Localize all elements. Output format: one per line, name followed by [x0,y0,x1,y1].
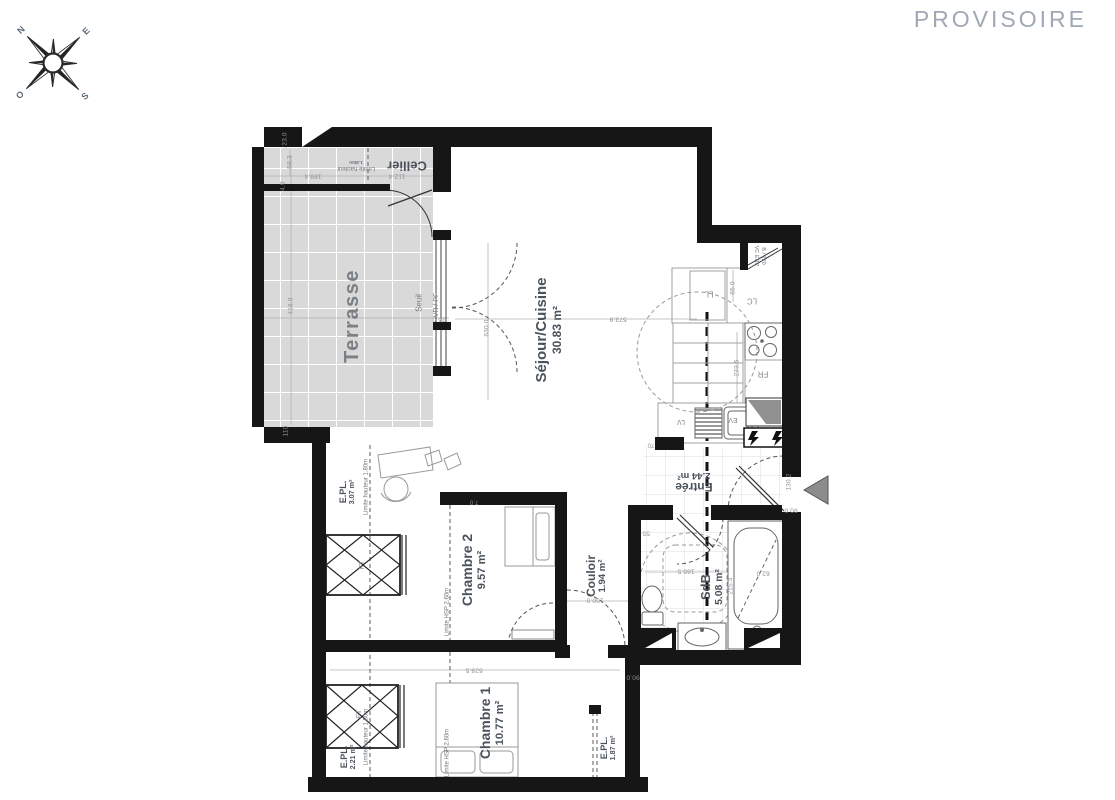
bed-chambre1-icon [436,683,518,777]
watermark-provisoire: PROVISOIRE [914,6,1087,33]
roof-window-icon [326,685,404,748]
roof-window-icon [326,535,406,595]
washbasin-icon [678,623,726,651]
compass-east-label: E [80,25,91,36]
dining-table-icon [637,292,757,412]
electrical-equipment [744,398,784,447]
fridge-icon [745,360,783,402]
radiator-icon [512,630,554,639]
floor-plan-drawing: N E S O [0,0,1115,800]
bed-chambre2-icon [505,507,555,566]
cooktop-icon [745,323,783,360]
entrance-arrow-icon [804,476,828,504]
compass-south-label: S [79,90,90,101]
terrace-window [436,240,446,366]
compass-rose-icon: N E S O [0,0,124,134]
toilet-icon [642,586,663,625]
compass-north-label: N [15,24,27,36]
compass-west-label: O [14,89,26,101]
floor-plan-page: N E S O CellierTerrasseSéjour/Cuisine30.… [0,0,1115,800]
